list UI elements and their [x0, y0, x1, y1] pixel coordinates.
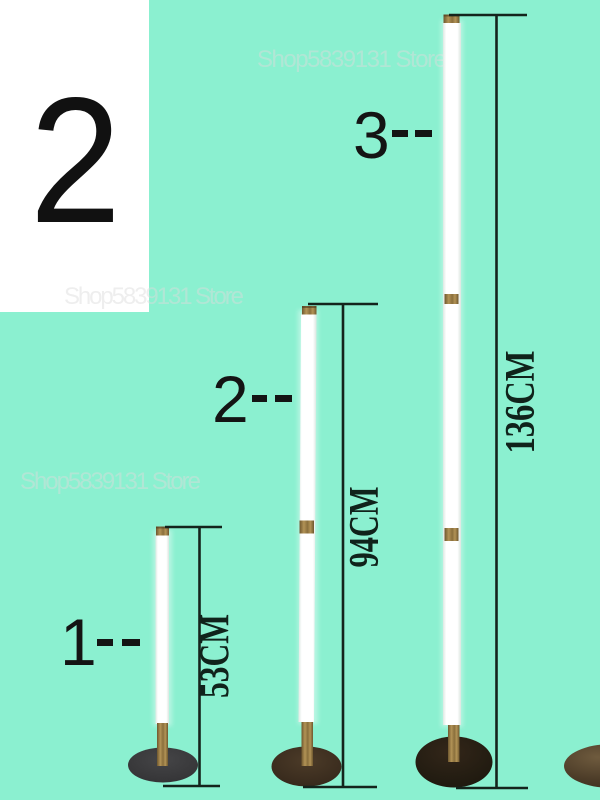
- svg-text:2: 2: [212, 362, 249, 436]
- svg-text:136CM: 136CM: [498, 351, 544, 454]
- svg-text:Shop5839131 Store: Shop5839131 Store: [20, 468, 201, 495]
- svg-text:94CM: 94CM: [342, 487, 388, 568]
- svg-text:2: 2: [30, 61, 122, 261]
- svg-text:Shop5839131 Store: Shop5839131 Store: [257, 46, 447, 73]
- svg-text:3: 3: [353, 98, 390, 172]
- svg-text:Shop5839131 Store: Shop5839131 Store: [64, 283, 244, 310]
- svg-text:53CM: 53CM: [193, 614, 239, 698]
- svg-text:1: 1: [60, 605, 97, 679]
